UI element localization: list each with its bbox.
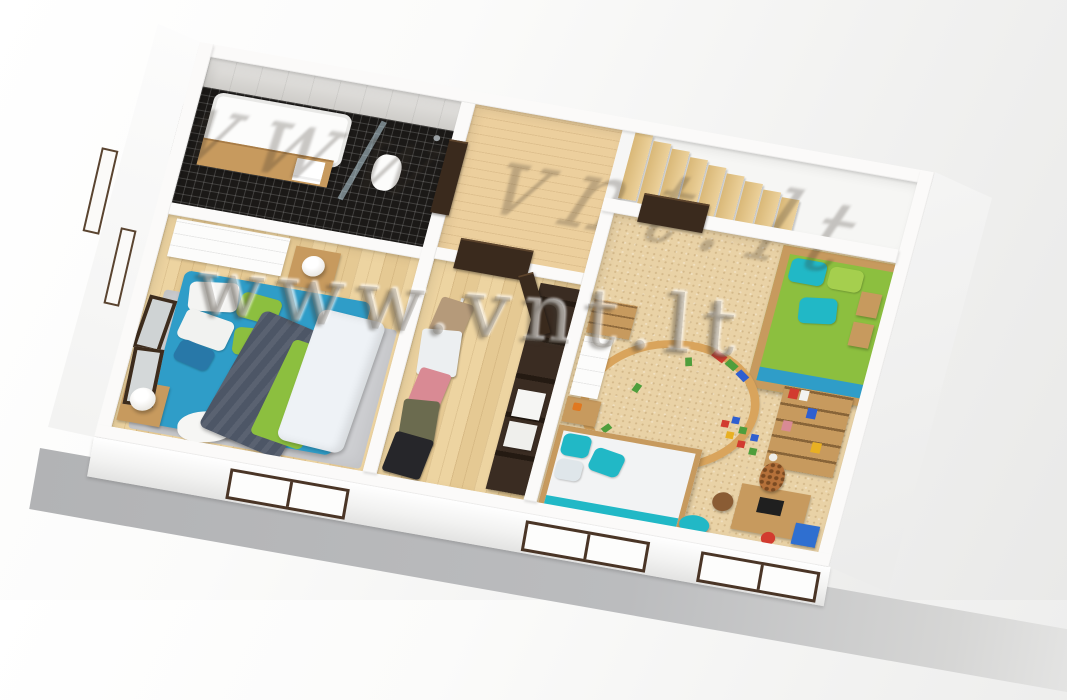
book — [799, 390, 810, 402]
toy-block — [738, 426, 747, 434]
floorplan-render: www.vnt.lt www.vnt.lt — [0, 0, 1067, 600]
toy-orange — [572, 402, 582, 411]
pillow-gray — [553, 458, 584, 483]
book — [781, 420, 793, 432]
toy-block — [725, 431, 734, 439]
desk-item-dark — [756, 497, 784, 516]
toy-block — [750, 434, 759, 442]
toy-block — [721, 420, 730, 428]
toy-block — [736, 440, 745, 448]
toy-block — [748, 448, 757, 456]
side-window — [83, 147, 119, 235]
kids-wall-shelf — [586, 299, 638, 340]
pillow-turquoise — [797, 297, 838, 325]
pillow-turquoise — [787, 257, 829, 287]
pillow-white — [187, 281, 240, 312]
toy-green-piece — [685, 357, 692, 366]
book — [810, 442, 822, 454]
pillow-turquoise — [559, 432, 593, 459]
book — [806, 408, 818, 420]
book — [788, 388, 800, 400]
toy-block — [731, 416, 740, 424]
toy-blocks — [713, 415, 772, 462]
pillow-turquoise — [586, 446, 627, 479]
pillow-lightgreen — [826, 266, 865, 294]
